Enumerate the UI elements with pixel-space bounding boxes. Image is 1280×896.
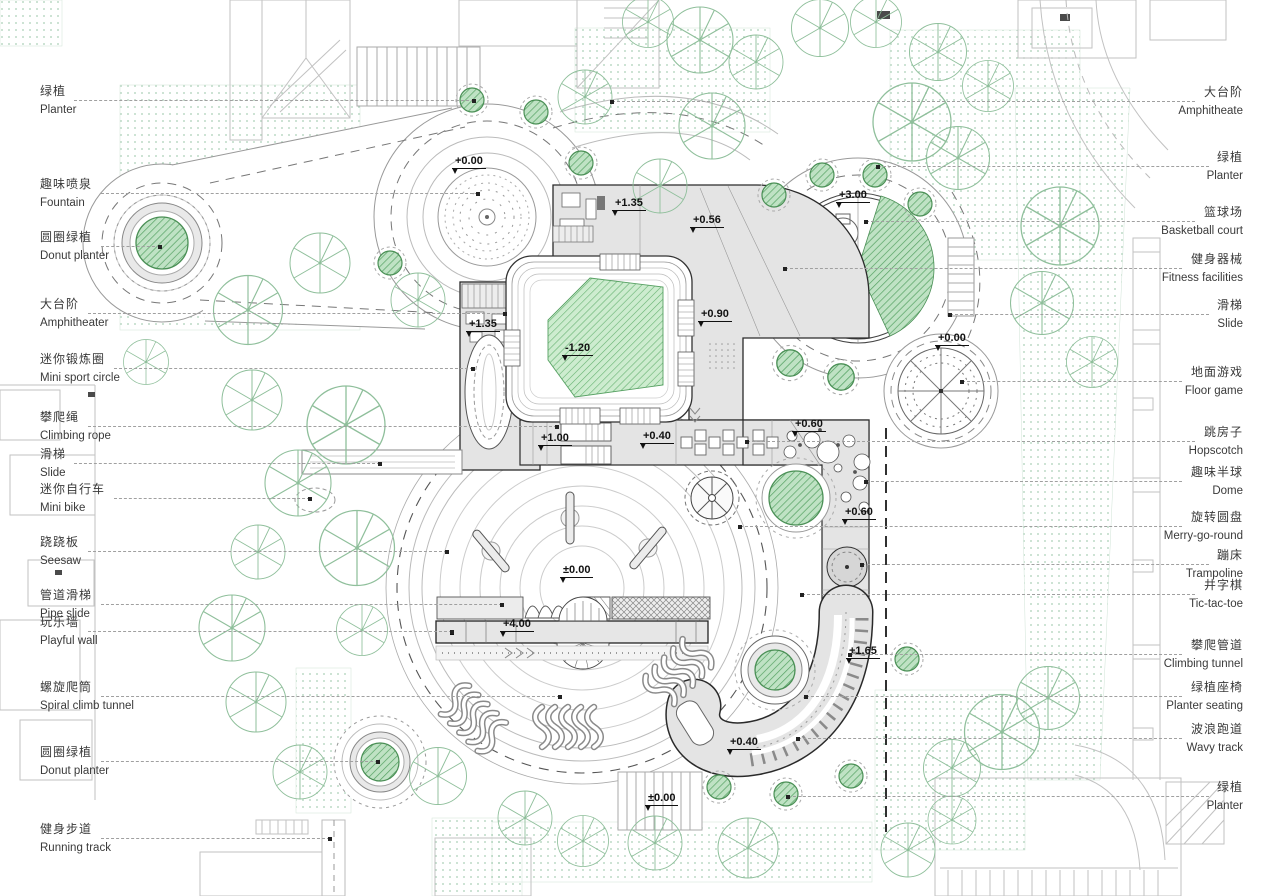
- elevation-marker-6: -1.20: [562, 342, 593, 356]
- leader-dot: [745, 440, 749, 444]
- leader-line: [114, 498, 310, 499]
- label-en: Dome: [1212, 485, 1243, 497]
- label-zh: 健身步道: [40, 820, 92, 837]
- slide-stairs: [948, 238, 974, 316]
- leader-dot: [503, 312, 507, 316]
- leader-line: [862, 564, 1209, 565]
- label-zh: 螺旋爬筒: [40, 678, 92, 695]
- elevation-marker-11: ±0.00: [560, 564, 593, 578]
- leader-dot: [864, 480, 868, 484]
- leader-line: [785, 268, 1182, 269]
- leader-dot: [500, 603, 504, 607]
- label-zh: 井字棋: [1204, 576, 1243, 593]
- merry-go-round: [685, 471, 739, 525]
- elevation-marker-15: +0.40: [727, 736, 761, 750]
- label-en: Hopscotch: [1189, 445, 1243, 457]
- leader-dot: [476, 192, 480, 196]
- leader-line: [950, 314, 1209, 315]
- elevation-marker-10: +0.60: [842, 506, 876, 520]
- label-zh: 大台阶: [40, 295, 79, 312]
- leader-line: [866, 221, 1195, 222]
- label-en: Donut planter: [40, 765, 109, 777]
- label-zh: 波浪跑道: [1191, 720, 1243, 737]
- label-zh: 滑梯: [1217, 296, 1243, 313]
- leader-dot: [948, 313, 952, 317]
- label-zh: 绿植: [1217, 148, 1243, 165]
- leader-line: [74, 463, 380, 464]
- label-zh: 绿植: [40, 82, 66, 99]
- leader-dot: [158, 245, 162, 249]
- leader-line: [740, 526, 1182, 527]
- label-en: Amphitheater: [40, 317, 108, 329]
- leader-dot: [800, 593, 804, 597]
- leader-dot: [738, 525, 742, 529]
- label-en: Climbing rope: [40, 430, 111, 442]
- label-en: Tic-tac-toe: [1189, 598, 1243, 610]
- label-en: Basketball court: [1161, 225, 1243, 237]
- donut-planter-bottom: [334, 716, 426, 808]
- leader-line: [962, 381, 1182, 382]
- label-zh: 圆圈绿植: [40, 743, 92, 760]
- playful-wall: [436, 597, 710, 669]
- leader-dot: [308, 497, 312, 501]
- leader-dot: [783, 267, 787, 271]
- label-zh: 圆圈绿植: [40, 228, 92, 245]
- leader-line: [101, 838, 330, 839]
- elevation-marker-9: +0.60: [792, 418, 826, 432]
- label-zh: 健身器械: [1191, 250, 1243, 267]
- label-zh: 攀爬绳: [40, 408, 79, 425]
- leader-line: [114, 368, 473, 369]
- label-en: Seesaw: [40, 555, 81, 567]
- label-en: Slide: [1217, 318, 1243, 330]
- leader-dot: [960, 380, 964, 384]
- leader-line: [74, 100, 474, 101]
- elevation-marker-12: +4.00: [500, 618, 534, 632]
- leader-dot: [328, 837, 332, 841]
- label-en: Climbing tunnel: [1164, 658, 1243, 670]
- leader-dot: [558, 695, 562, 699]
- leader-line: [88, 426, 557, 427]
- label-en: Mini bike: [40, 502, 85, 514]
- leader-dot: [450, 630, 454, 634]
- elevation-marker-16: ±0.00: [645, 792, 678, 806]
- label-zh: 绿植: [1217, 778, 1243, 795]
- leader-dot: [610, 100, 614, 104]
- leader-dot: [804, 695, 808, 699]
- elevation-marker-5: +1.35: [466, 318, 500, 332]
- label-zh: 跷跷板: [40, 533, 79, 550]
- label-en: Playful wall: [40, 635, 98, 647]
- label-en: Amphitheate: [1178, 105, 1243, 117]
- playground-site-plan: 绿植Planter趣味喷泉Fountain圆圈绿植Donut planter大台…: [0, 0, 1280, 896]
- leader-line: [101, 696, 560, 697]
- label-en: Slide: [40, 467, 66, 479]
- floor-game: [898, 348, 984, 434]
- label-en: Donut planter: [40, 250, 109, 262]
- label-zh: 滑梯: [40, 445, 66, 462]
- leader-line: [88, 631, 452, 632]
- label-en: Wavy track: [1187, 742, 1243, 754]
- leader-dot: [378, 462, 382, 466]
- label-en: Fountain: [40, 197, 85, 209]
- elevation-marker-4: +0.90: [698, 308, 732, 322]
- label-en: Planter: [40, 104, 76, 116]
- leader-line: [747, 441, 1195, 442]
- label-zh: 绿植座椅: [1191, 678, 1243, 695]
- elevation-marker-8: +0.40: [640, 430, 674, 444]
- label-zh: 跳房子: [1204, 423, 1243, 440]
- leader-line: [88, 551, 447, 552]
- label-en: Merry-go-round: [1164, 530, 1243, 542]
- leader-dot: [471, 367, 475, 371]
- elevation-marker-7: +1.00: [538, 432, 572, 446]
- label-en: Planter seating: [1166, 700, 1243, 712]
- label-zh: 趣味半球: [1191, 463, 1243, 480]
- label-zh: 玩乐墙: [40, 613, 79, 630]
- leader-dot: [864, 220, 868, 224]
- elevation-marker-3: +3.00: [836, 189, 870, 203]
- elevation-marker-13: +0.00: [935, 332, 969, 346]
- fountain: [438, 168, 536, 266]
- leader-line: [101, 604, 502, 605]
- leader-line: [101, 246, 160, 247]
- leader-dot: [555, 425, 559, 429]
- label-zh: 迷你自行车: [40, 480, 105, 497]
- leader-line: [850, 654, 1182, 655]
- leader-line: [806, 696, 1182, 697]
- label-en: Running track: [40, 842, 111, 854]
- label-en: Spiral climb tunnel: [40, 700, 134, 712]
- leader-line: [88, 313, 505, 314]
- leader-dot: [876, 165, 880, 169]
- label-en: Mini sport circle: [40, 372, 120, 384]
- leader-line: [788, 796, 1209, 797]
- leader-dot: [796, 737, 800, 741]
- label-zh: 迷你锻炼圈: [40, 350, 105, 367]
- label-zh: 管道滑梯: [40, 586, 92, 603]
- label-en: Fitness facilities: [1162, 272, 1243, 284]
- elevation-marker-2: +0.56: [690, 214, 724, 228]
- label-zh: 旋转圆盘: [1191, 508, 1243, 525]
- elevation-marker-1: +1.35: [612, 197, 646, 211]
- leader-line: [802, 594, 1195, 595]
- label-zh: 蹦床: [1217, 546, 1243, 563]
- label-en: Planter: [1207, 800, 1243, 812]
- leader-line: [612, 101, 1195, 102]
- leader-dot: [376, 760, 380, 764]
- elevation-marker-0: +0.00: [452, 155, 486, 169]
- label-zh: 趣味喷泉: [40, 175, 92, 192]
- label-en: Floor game: [1185, 385, 1243, 397]
- label-zh: 大台阶: [1204, 83, 1243, 100]
- elevation-marker-14: +1.65: [846, 645, 880, 659]
- label-zh: 地面游戏: [1191, 363, 1243, 380]
- leader-line: [866, 481, 1182, 482]
- central-plaza: [504, 254, 694, 424]
- label-zh: 篮球场: [1204, 203, 1243, 220]
- leader-dot: [445, 550, 449, 554]
- leader-line: [101, 193, 478, 194]
- leader-dot: [786, 795, 790, 799]
- leader-dot: [472, 99, 476, 103]
- leader-line: [798, 738, 1182, 739]
- leader-line: [878, 166, 1209, 167]
- label-en: Planter: [1207, 170, 1243, 182]
- leader-dot: [860, 563, 864, 567]
- leader-line: [101, 761, 378, 762]
- label-zh: 攀爬管道: [1191, 636, 1243, 653]
